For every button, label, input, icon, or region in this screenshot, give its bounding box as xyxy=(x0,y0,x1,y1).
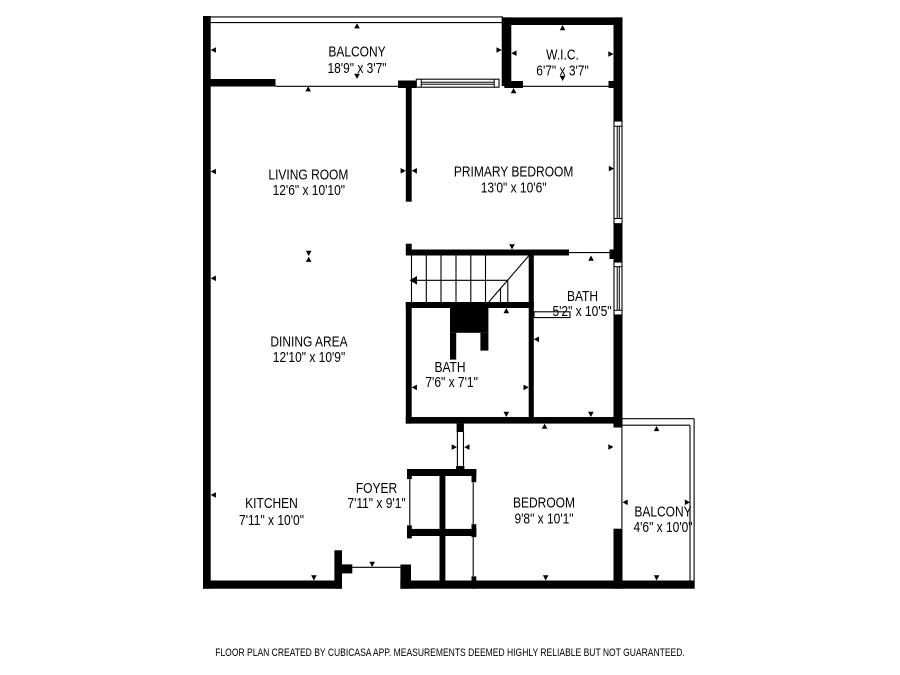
svg-text:FOYER: FOYER xyxy=(356,480,397,496)
svg-text:13'0" x 10'6": 13'0" x 10'6" xyxy=(481,179,547,195)
svg-text:BATH: BATH xyxy=(567,288,598,304)
svg-text:9'8" x 10'1": 9'8" x 10'1" xyxy=(514,511,573,527)
svg-text:4'6" x 10'0": 4'6" x 10'0" xyxy=(633,519,692,535)
svg-text:DINING AREA: DINING AREA xyxy=(270,333,348,349)
svg-text:LIVING ROOM: LIVING ROOM xyxy=(268,166,348,182)
svg-text:BALCONY: BALCONY xyxy=(328,43,386,59)
svg-text:PRIMARY BEDROOM: PRIMARY BEDROOM xyxy=(454,163,574,179)
svg-text:KITCHEN: KITCHEN xyxy=(245,495,298,511)
svg-text:W.I.C.: W.I.C. xyxy=(546,46,579,62)
svg-text:12'6" x 10'10": 12'6" x 10'10" xyxy=(273,182,346,198)
svg-text:18'9" x 3'7": 18'9" x 3'7" xyxy=(327,60,386,76)
svg-text:12'10" x 10'9": 12'10" x 10'9" xyxy=(273,349,346,365)
svg-text:5'2" x 10'5": 5'2" x 10'5" xyxy=(552,303,611,319)
svg-text:7'11" x 9'1": 7'11" x 9'1" xyxy=(347,495,406,511)
svg-text:FLOOR PLAN CREATED BY CUBICASA: FLOOR PLAN CREATED BY CUBICASA APP. MEAS… xyxy=(215,647,685,659)
svg-text:BEDROOM: BEDROOM xyxy=(513,495,575,511)
svg-text:BALCONY: BALCONY xyxy=(634,504,692,520)
svg-text:7'11" x 10'0": 7'11" x 10'0" xyxy=(239,512,304,528)
svg-text:7'6" x 7'1": 7'6" x 7'1" xyxy=(425,374,478,390)
svg-text:6'7" x 3'7": 6'7" x 3'7" xyxy=(536,62,589,78)
